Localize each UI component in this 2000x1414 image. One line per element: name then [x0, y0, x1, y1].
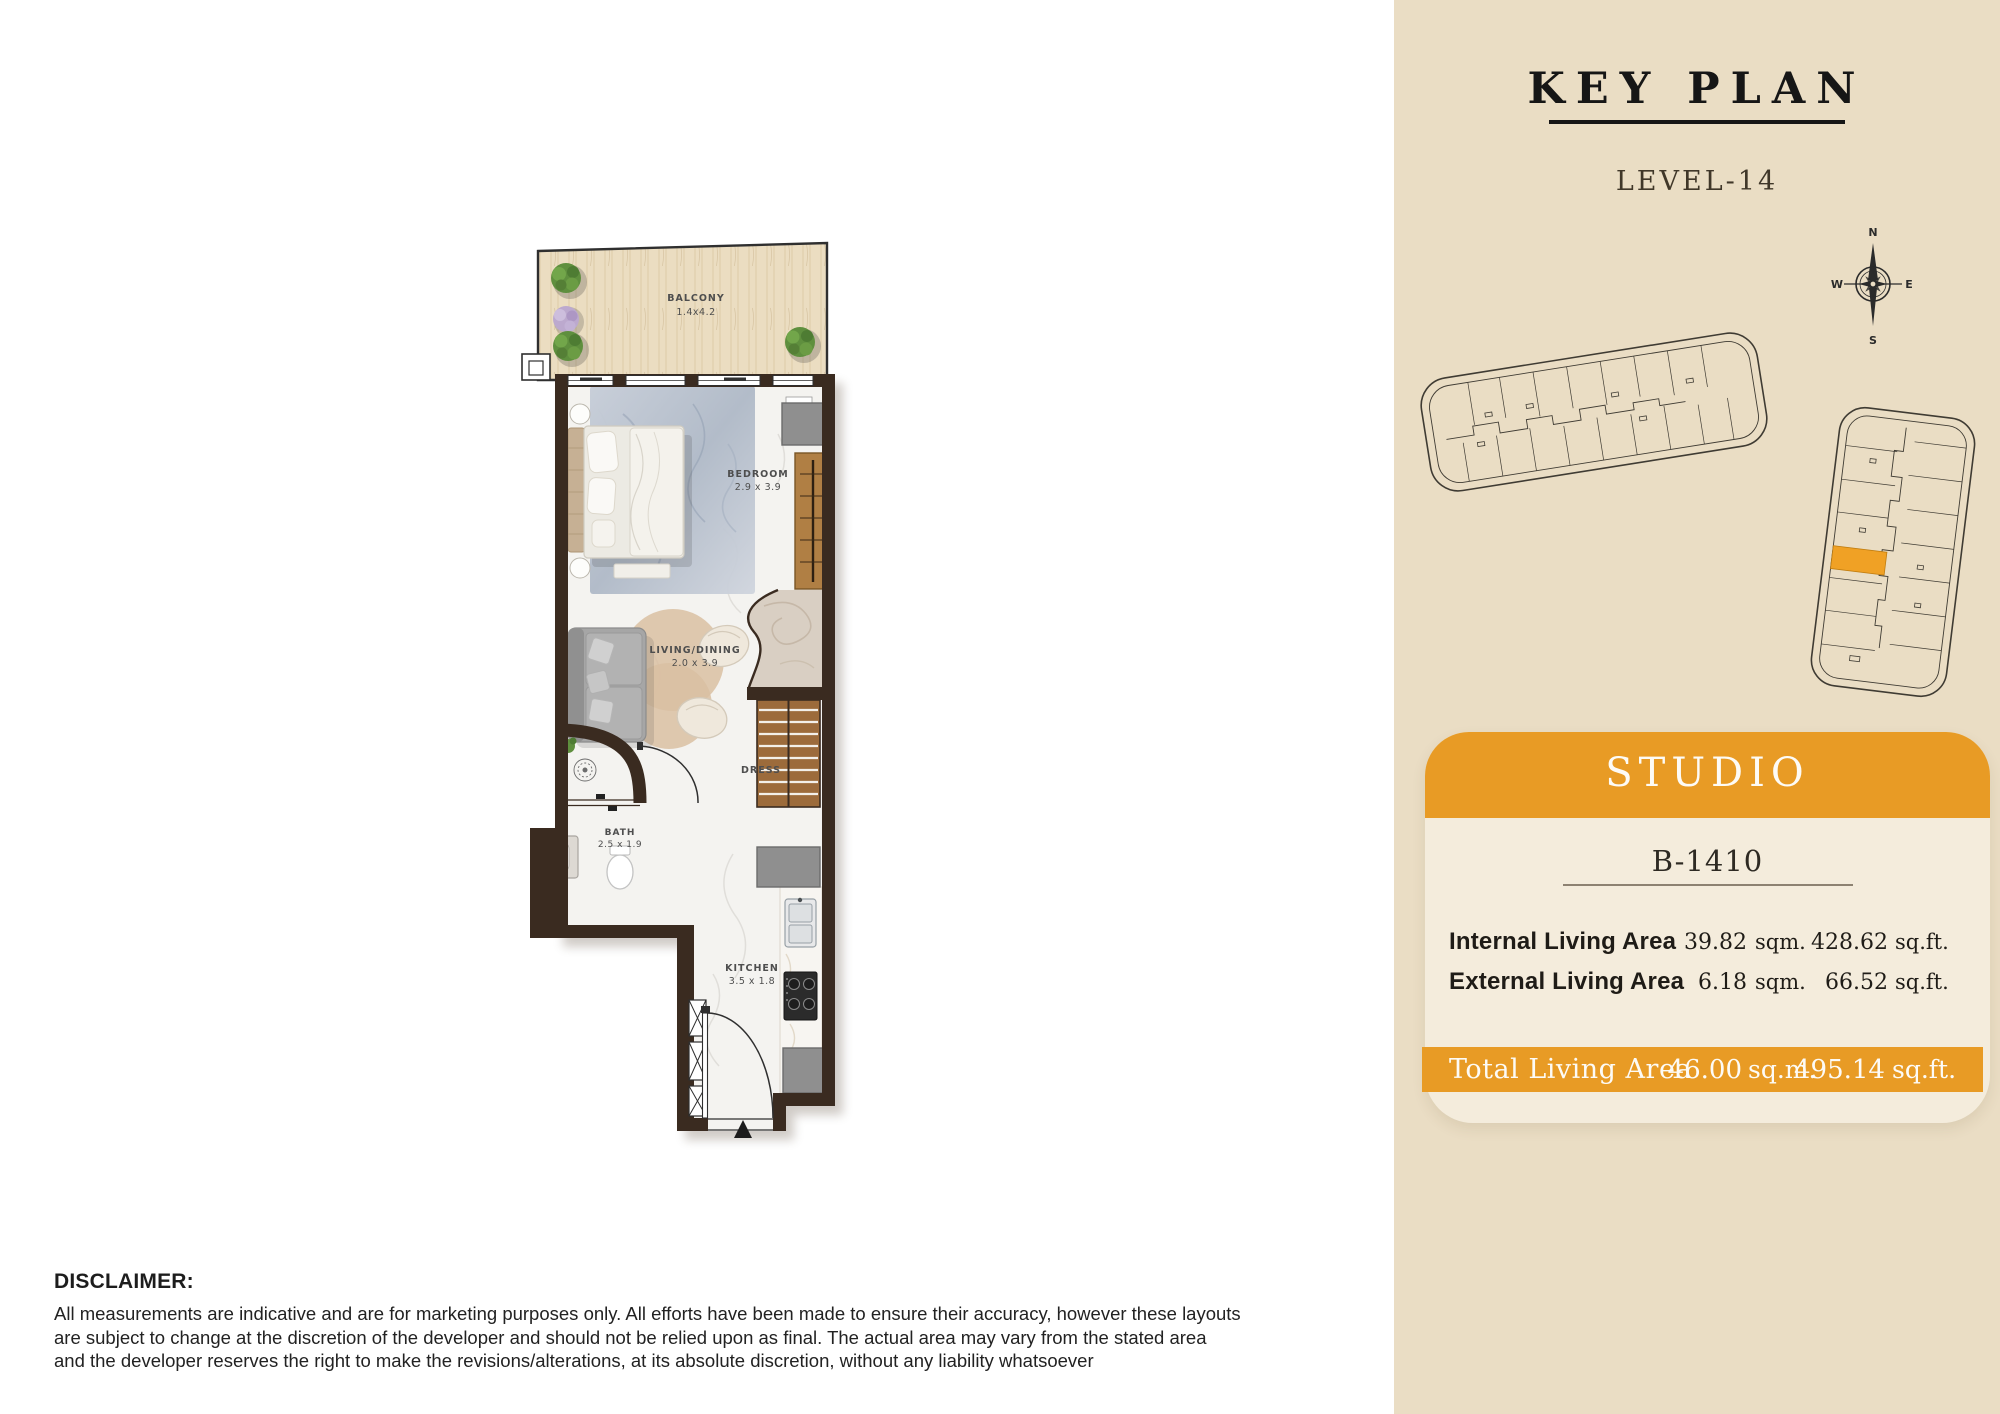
internal-sqm-value: 39.82: [1647, 930, 1747, 955]
stove: [784, 972, 817, 1020]
disclaimer-heading: DISCLAIMER:: [54, 1270, 1364, 1294]
bedroom-label: BEDROOM: [727, 469, 789, 480]
floorplan-drawing: BALCONY 1.4x4.2: [528, 234, 838, 1149]
disclaimer-line: are subject to change at the discretion …: [54, 1326, 1364, 1350]
compass-s: S: [1869, 334, 1877, 347]
compass-w: W: [1831, 278, 1843, 291]
highlighted-unit: [1831, 546, 1887, 575]
internal-area-row: Internal Living Area 39.82 sqm. 428.62 s…: [1425, 928, 1990, 960]
bath-dims: 2.5 x 1.9: [598, 840, 642, 850]
floorplan-svg: BALCONY 1.4x4.2: [528, 234, 838, 1149]
disclaimer-line: All measurements are indicative and are …: [54, 1302, 1364, 1326]
total-area-bar: Total Living Area 46.00 sq.m. 495.14 sq.…: [1422, 1047, 1983, 1092]
toilet: [607, 846, 633, 889]
wall: [747, 687, 835, 700]
internal-area-label: Internal Living Area: [1449, 928, 1676, 956]
total-sqft-value: 495.14: [1794, 1055, 1884, 1085]
unit-type-header: STUDIO: [1425, 732, 1990, 818]
balcony-dims: 1.4x4.2: [676, 307, 715, 318]
living-dims: 2.0 x 3.9: [672, 658, 718, 669]
bedroom-dims: 2.9 x 3.9: [735, 482, 781, 493]
building-1-outline: [1417, 329, 1771, 495]
dress-label: DRESS: [741, 765, 781, 776]
bath-label: BATH: [605, 828, 636, 838]
balcony-label: BALCONY: [667, 293, 725, 304]
external-sqm-value: 6.18: [1647, 970, 1747, 995]
floorplan-brochure-page: BALCONY 1.4x4.2: [0, 0, 2000, 1414]
dress-nook: [748, 590, 822, 690]
fridge: [757, 847, 820, 887]
disclaimer: DISCLAIMER: All measurements are indicat…: [54, 1270, 1364, 1373]
building-2-outline: [1808, 405, 1977, 699]
washer-box: [783, 1048, 823, 1093]
kitchen-label: KITCHEN: [725, 963, 779, 974]
internal-sqft-unit: sq.ft.: [1895, 930, 1949, 954]
compass-n: N: [1868, 226, 1877, 239]
kitchen-sink: [785, 898, 816, 947]
balcony-access-box: [522, 354, 550, 380]
compass-e: E: [1905, 278, 1913, 291]
external-sqft-unit: sq.ft.: [1895, 970, 1949, 994]
compass-icon: [1844, 243, 1902, 326]
balcony: BALCONY 1.4x4.2: [522, 243, 827, 380]
key-plan-map: N S W E: [1394, 0, 2000, 720]
key-plan-panel: KEY PLAN LEVEL-14: [1394, 0, 2000, 1414]
dress-closet: [757, 700, 820, 807]
unit-type-label: STUDIO: [1605, 750, 1809, 796]
disclaimer-line: and the developer reserves the right to …: [54, 1349, 1364, 1373]
kitchen-dims: 3.5 x 1.8: [729, 976, 775, 987]
unit-number-underline: [1563, 884, 1853, 886]
total-sqm-value: 46.00: [1647, 1055, 1742, 1085]
bed: [568, 404, 692, 578]
external-sqft-value: 66.52: [1793, 970, 1888, 995]
living-label: LIVING/DINING: [649, 645, 740, 656]
internal-sqft-value: 428.62: [1793, 930, 1888, 955]
unit-number: B-1410: [1425, 844, 1990, 878]
total-sqft-unit: sq.ft.: [1892, 1055, 1956, 1084]
external-area-row: External Living Area 6.18 sqm. 66.52 sq.…: [1425, 968, 1990, 1000]
unit-info-card: STUDIO B-1410 Internal Living Area 39.82…: [1425, 732, 1990, 1123]
vent: [786, 397, 812, 403]
